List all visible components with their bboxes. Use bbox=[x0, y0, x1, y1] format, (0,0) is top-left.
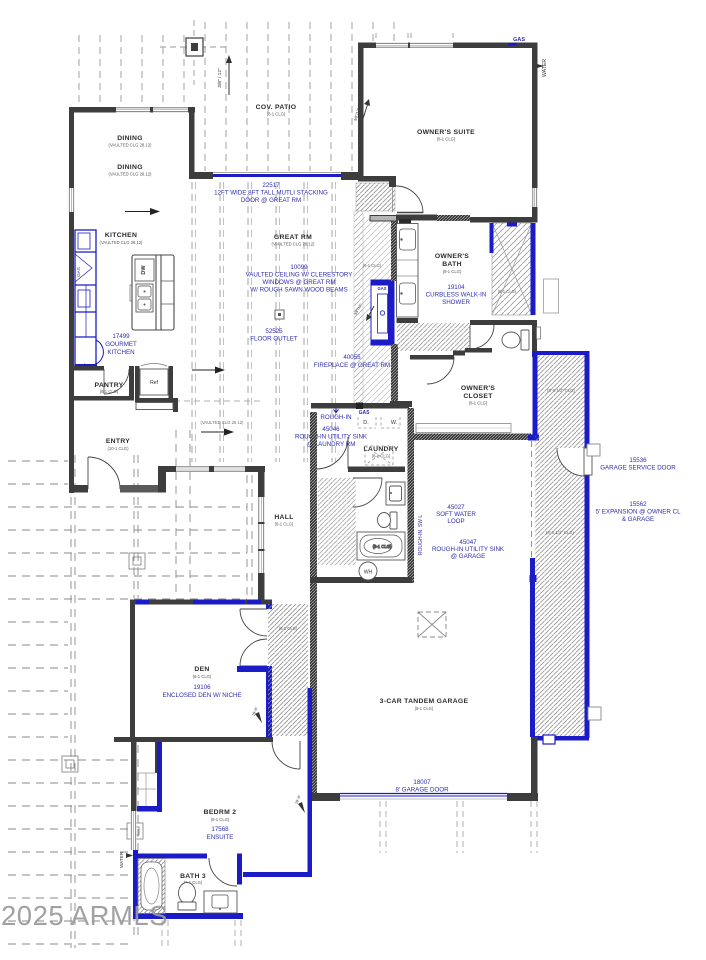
svg-text:CLOSET: CLOSET bbox=[463, 393, 493, 400]
svg-text:(8'-0 1/2" CLG): (8'-0 1/2" CLG) bbox=[547, 388, 575, 393]
svg-text:@ GARAGE: @ GARAGE bbox=[451, 553, 485, 560]
svg-text:Ref: Ref bbox=[150, 380, 159, 386]
svg-text:GAS: GAS bbox=[377, 286, 386, 291]
svg-text:5' EXPANSION @ OWNER CL: 5' EXPANSION @ OWNER CL bbox=[595, 509, 681, 516]
svg-text:40055: 40055 bbox=[343, 354, 361, 361]
svg-text:KITCHEN: KITCHEN bbox=[107, 349, 134, 356]
svg-text:DW: DW bbox=[141, 265, 147, 275]
svg-text:VAULTED CEILING W/ CLERESTORY: VAULTED CEILING W/ CLERESTORY bbox=[246, 272, 353, 279]
svg-text:CURBLESS WALK-IN: CURBLESS WALK-IN bbox=[426, 292, 487, 299]
svg-text:(VAULTED CLG 28.12): (VAULTED CLG 28.12) bbox=[100, 240, 144, 245]
svg-text:BATH: BATH bbox=[442, 261, 462, 268]
svg-text:D.: D. bbox=[363, 420, 368, 426]
svg-text:FLOOR OUTLET: FLOOR OUTLET bbox=[250, 336, 298, 343]
svg-text:W.: W. bbox=[391, 420, 397, 426]
svg-text:(8-1 CLG): (8-1 CLG) bbox=[267, 112, 286, 117]
svg-text:(8-1 CLG): (8-1 CLG) bbox=[193, 674, 212, 679]
svg-text:DOOR @ GREAT RM: DOOR @ GREAT RM bbox=[241, 197, 301, 204]
svg-text:19104: 19104 bbox=[447, 284, 465, 291]
svg-text:(8-1 CLG): (8-1 CLG) bbox=[373, 544, 392, 549]
svg-text:SHOWER: SHOWER bbox=[442, 299, 470, 306]
svg-text:(8-1 CLG): (8-1 CLG) bbox=[443, 269, 462, 274]
svg-text:WINDOWS @ GREAT RM: WINDOWS @ GREAT RM bbox=[262, 279, 335, 286]
svg-text:8' GARAGE DOOR: 8' GARAGE DOOR bbox=[395, 787, 449, 794]
svg-text:10099: 10099 bbox=[290, 264, 308, 271]
svg-text:(VAULTED CLG 25 12): (VAULTED CLG 25 12) bbox=[201, 420, 245, 425]
svg-text:KITCHEN: KITCHEN bbox=[105, 232, 137, 239]
svg-text:ROUGH-IN UTILITY SINK: ROUGH-IN UTILITY SINK bbox=[432, 546, 505, 553]
svg-text:18007: 18007 bbox=[413, 779, 431, 786]
svg-text:45047: 45047 bbox=[459, 539, 477, 546]
svg-text:3-CAR TANDEM GARAGE: 3-CAR TANDEM GARAGE bbox=[380, 698, 469, 705]
svg-text:OWNER'S SUITE: OWNER'S SUITE bbox=[417, 129, 475, 136]
svg-text:ENTRY: ENTRY bbox=[106, 438, 130, 445]
svg-text:GAS: GAS bbox=[76, 267, 81, 277]
svg-text:12FT WIDE 8FT TALL MUTLI STACK: 12FT WIDE 8FT TALL MUTLI STACKING bbox=[214, 190, 328, 197]
svg-text:3/8" / 12": 3/8" / 12" bbox=[217, 68, 223, 88]
svg-text:ROUGH-IN SW L: ROUGH-IN SW L bbox=[418, 515, 424, 555]
svg-text:ENCLOSED DEN W/ NICHE: ENCLOSED DEN W/ NICHE bbox=[162, 692, 241, 699]
svg-text:52525: 52525 bbox=[265, 328, 283, 335]
svg-text:PANTRY: PANTRY bbox=[95, 382, 124, 389]
svg-text:BEDRM 2: BEDRM 2 bbox=[204, 809, 237, 816]
svg-text:ENSUITE: ENSUITE bbox=[207, 834, 234, 841]
svg-text:17499: 17499 bbox=[112, 333, 130, 340]
svg-text:(8-1 CLG): (8-1 CLG) bbox=[275, 522, 294, 527]
svg-text:FIREPLACE @ GREAT RM: FIREPLACE @ GREAT RM bbox=[314, 362, 390, 369]
svg-text:W/ ROUGH SAWN WOOD BEAMS: W/ ROUGH SAWN WOOD BEAMS bbox=[250, 287, 347, 294]
svg-text:(8-1 CLG): (8-1 CLG) bbox=[498, 289, 517, 294]
svg-text:17568: 17568 bbox=[211, 826, 229, 833]
svg-text:2025 ARMLS: 2025 ARMLS bbox=[1, 900, 168, 931]
svg-text:BATH 3: BATH 3 bbox=[180, 873, 206, 880]
svg-text:(8-1 CLG): (8-1 CLG) bbox=[469, 401, 488, 406]
svg-text:ROUGH-IN: ROUGH-IN bbox=[320, 414, 351, 421]
svg-text:(8-1 CLG): (8-1 CLG) bbox=[363, 263, 382, 268]
svg-text:SOFT WATER: SOFT WATER bbox=[436, 511, 476, 518]
svg-text:(VAULTED CLG 28.12): (VAULTED CLG 28.12) bbox=[272, 242, 316, 247]
svg-text:HALL: HALL bbox=[274, 514, 293, 521]
svg-text:GARAGE SERVICE DOOR: GARAGE SERVICE DOOR bbox=[600, 465, 676, 472]
svg-text:GAS: GAS bbox=[359, 410, 371, 416]
svg-text:GAS: GAS bbox=[513, 37, 525, 43]
svg-text:(8-1 CLG): (8-1 CLG) bbox=[372, 454, 391, 459]
svg-text:(VAULTED CLG 28.12): (VAULTED CLG 28.12) bbox=[109, 143, 153, 148]
svg-text:GREAT RM: GREAT RM bbox=[274, 234, 312, 241]
svg-text:WATER: WATER bbox=[542, 59, 548, 77]
svg-text:45046: 45046 bbox=[322, 426, 340, 433]
svg-text:DINING: DINING bbox=[117, 164, 143, 171]
svg-text:DEN: DEN bbox=[194, 666, 209, 673]
svg-text:GOURMET: GOURMET bbox=[105, 341, 137, 348]
svg-text:LAUNDRY: LAUNDRY bbox=[363, 446, 398, 453]
svg-text:WATER: WATER bbox=[119, 851, 124, 868]
svg-text:(8-1 CLG): (8-1 CLG) bbox=[211, 817, 230, 822]
svg-text:22517: 22517 bbox=[262, 182, 280, 189]
svg-text:(8'-0 1/2" CLG): (8'-0 1/2" CLG) bbox=[546, 530, 574, 535]
svg-text:LOOP: LOOP bbox=[447, 518, 464, 525]
svg-text:(VAULTED CLG 28.12): (VAULTED CLG 28.12) bbox=[109, 172, 153, 177]
svg-text:WH: WH bbox=[364, 570, 373, 576]
svg-text:& GARAGE: & GARAGE bbox=[622, 516, 654, 523]
svg-text:45027: 45027 bbox=[447, 504, 465, 511]
svg-text:(8-1 CLG): (8-1 CLG) bbox=[415, 706, 434, 711]
svg-text:COV. PATIO: COV. PATIO bbox=[256, 104, 297, 111]
svg-text:(8-1 CLG): (8-1 CLG) bbox=[279, 626, 298, 631]
svg-text:OWNER'S: OWNER'S bbox=[435, 253, 469, 260]
svg-text:DINING: DINING bbox=[117, 135, 143, 142]
svg-text:15562: 15562 bbox=[629, 501, 647, 508]
svg-text:19106: 19106 bbox=[193, 684, 211, 691]
svg-text:15536: 15536 bbox=[629, 457, 647, 464]
svg-text:OWNER'S: OWNER'S bbox=[461, 385, 495, 392]
svg-text:ROUGH-IN UTILITY SINK: ROUGH-IN UTILITY SINK bbox=[295, 434, 368, 441]
svg-text:(8-1 CLG): (8-1 CLG) bbox=[437, 137, 456, 142]
svg-text:(10-1 CLG): (10-1 CLG) bbox=[108, 446, 130, 451]
